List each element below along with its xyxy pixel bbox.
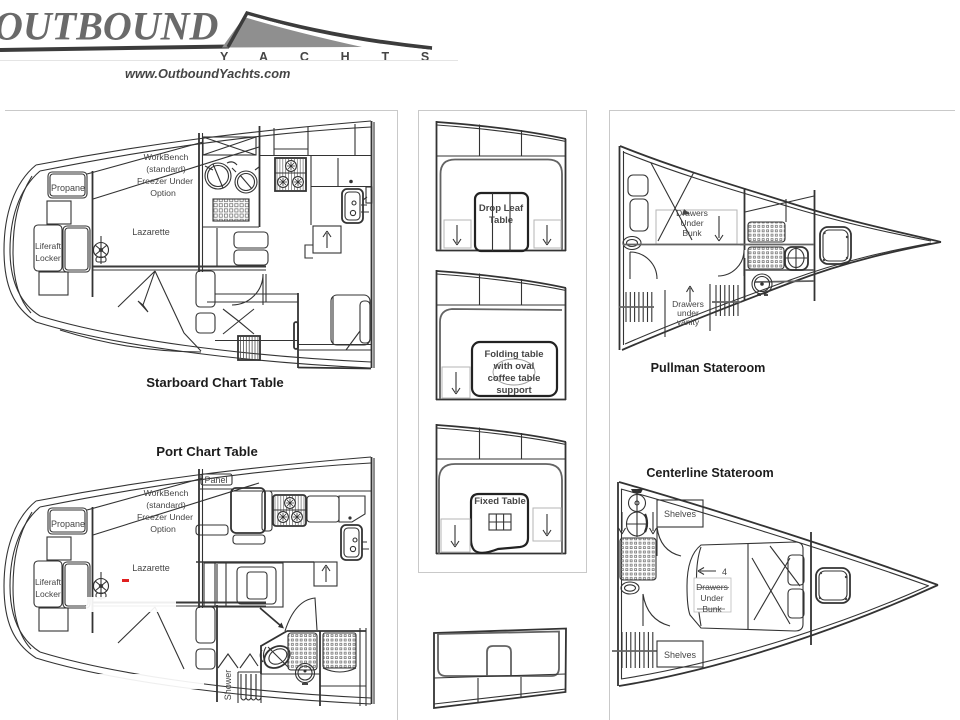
svg-text:YACHTS: YACHTS <box>220 50 461 64</box>
svg-text:Drawers: Drawers <box>696 582 728 592</box>
svg-text:Freezer Under: Freezer Under <box>137 176 193 186</box>
svg-text:Panel: Panel <box>204 475 227 485</box>
svg-text:Drop Leaf: Drop Leaf <box>479 203 524 214</box>
svg-text:Propane: Propane <box>51 519 85 529</box>
svg-text:Port Chart Table: Port Chart Table <box>156 444 258 459</box>
svg-text:OUTBOUND: OUTBOUND <box>0 4 218 49</box>
svg-text:Starboard Chart Table: Starboard Chart Table <box>146 375 284 390</box>
svg-text:Under: Under <box>680 218 703 228</box>
svg-text:www.OutboundYachts.com: www.OutboundYachts.com <box>125 66 290 81</box>
svg-text:Table: Table <box>489 215 513 226</box>
svg-text:Drawers: Drawers <box>676 208 708 218</box>
svg-text:coffee table: coffee table <box>488 373 541 384</box>
svg-text:(standard): (standard) <box>146 164 186 174</box>
svg-text:Centerline Stateroom: Centerline Stateroom <box>646 466 773 480</box>
svg-text:Locker: Locker <box>35 253 61 263</box>
svg-text:with oval: with oval <box>493 361 535 372</box>
svg-text:Locker: Locker <box>35 589 61 599</box>
svg-text:Liferaft: Liferaft <box>35 577 62 587</box>
svg-text:WorkBench: WorkBench <box>144 488 189 498</box>
svg-text:(standard): (standard) <box>146 500 186 510</box>
svg-text:Propane: Propane <box>51 183 85 193</box>
svg-text:Folding table: Folding table <box>484 349 543 360</box>
svg-text:Shower: Shower <box>223 670 233 701</box>
svg-text:support: support <box>496 385 532 396</box>
svg-text:vanity: vanity <box>677 317 700 327</box>
svg-text:Freezer Under: Freezer Under <box>137 512 193 522</box>
svg-text:Under: Under <box>700 593 723 603</box>
svg-text:Fixed Table: Fixed Table <box>474 496 526 507</box>
svg-text:Option: Option <box>150 524 176 534</box>
svg-text:Shelves: Shelves <box>664 509 697 519</box>
svg-text:Lazarette: Lazarette <box>132 227 170 237</box>
svg-text:Option: Option <box>150 188 176 198</box>
svg-text:Liferaft: Liferaft <box>35 241 62 251</box>
svg-text:Pullman Stateroom: Pullman Stateroom <box>651 361 766 375</box>
svg-text:Lazarette: Lazarette <box>132 563 170 573</box>
svg-text:Bunk: Bunk <box>682 228 702 238</box>
svg-text:WorkBench: WorkBench <box>144 152 189 162</box>
svg-text:Shelves: Shelves <box>664 650 697 660</box>
svg-text:4: 4 <box>722 567 727 577</box>
